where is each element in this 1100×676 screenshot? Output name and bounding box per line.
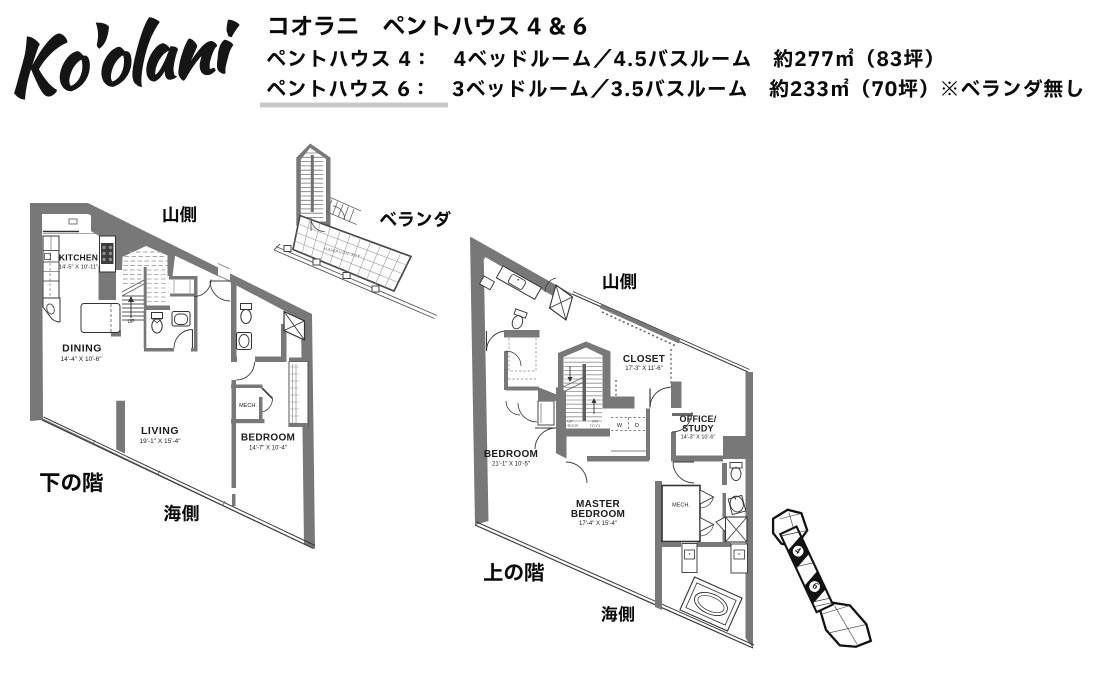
svg-text:BEDROOM: BEDROOM (241, 433, 295, 444)
svg-text:17'-3" X 11'-6": 17'-3" X 11'-6" (625, 366, 662, 372)
svg-text:UP: UP (128, 319, 136, 325)
svg-text:17'-4" X 15'-4": 17'-4" X 15'-4" (579, 521, 617, 527)
svg-text:MECH.: MECH. (672, 503, 690, 509)
svg-text:BEDROOM: BEDROOM (484, 449, 538, 460)
svg-text:14'-7" X 10'-4": 14'-7" X 10'-4" (249, 446, 287, 452)
svg-text:21'-1" X 10'-5": 21'-1" X 10'-5" (492, 462, 530, 468)
svg-text:OFFICE/: OFFICE/ (680, 414, 717, 424)
svg-text:14'-3" X 10'-6": 14'-3" X 10'-6" (681, 435, 716, 441)
svg-text:LIVING: LIVING (141, 425, 179, 437)
svg-text:W: W (617, 423, 623, 429)
svg-text:19'-1" X 15'-4": 19'-1" X 15'-4" (139, 438, 181, 445)
svg-text:UP: UP (567, 419, 573, 424)
svg-text:STUDY: STUDY (682, 424, 714, 434)
svg-text:DN: DN (592, 419, 598, 424)
svg-text:14'-4" X 10'-6": 14'-4" X 10'-6" (60, 356, 102, 363)
svg-text:KITCHEN: KITCHEN (59, 253, 98, 263)
svg-text:14'-5" X 10'-11": 14'-5" X 10'-11" (59, 265, 98, 271)
svg-text:CLOSET: CLOSET (623, 354, 665, 365)
svg-text:DINING: DINING (62, 343, 102, 355)
svg-text:D: D (635, 423, 639, 429)
svg-text:MECH.: MECH. (239, 403, 257, 409)
svg-text:BEDROOM: BEDROOM (571, 509, 625, 520)
svg-text:TO F1: TO F1 (590, 424, 601, 428)
